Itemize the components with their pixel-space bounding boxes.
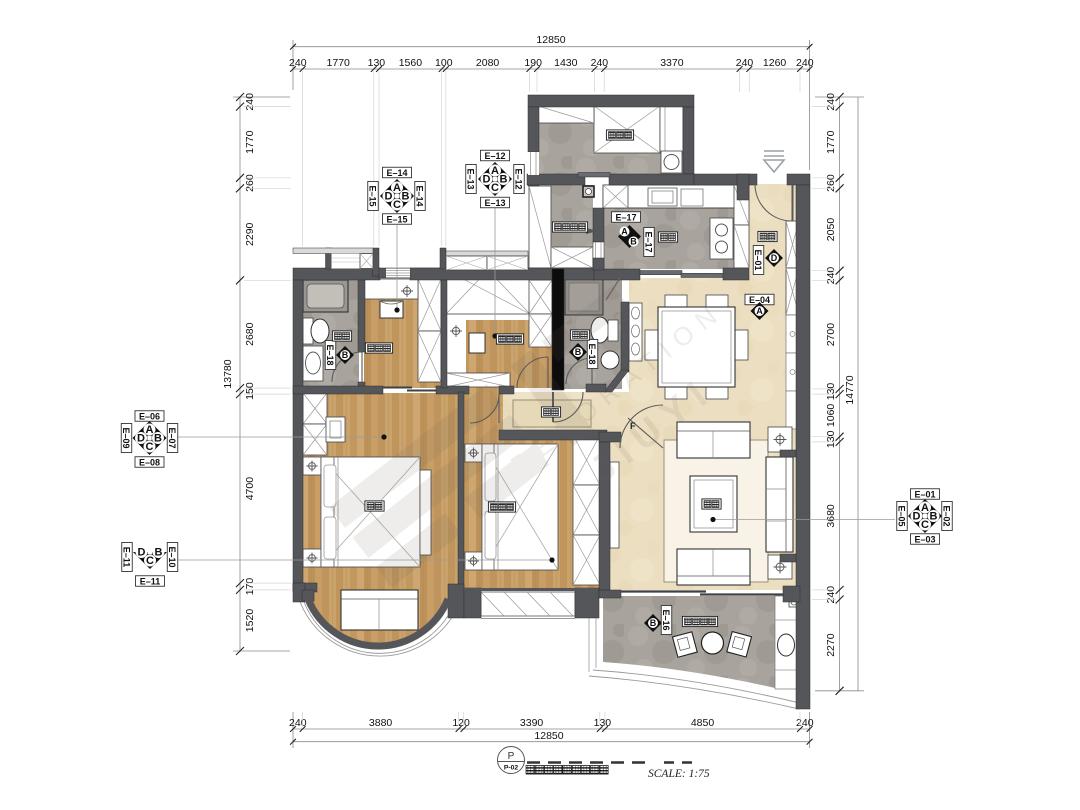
svg-text:B: B bbox=[342, 350, 349, 360]
svg-text:2680: 2680 bbox=[244, 322, 256, 346]
svg-text:E–11: E–11 bbox=[122, 547, 132, 568]
svg-text:E–18: E–18 bbox=[587, 343, 597, 364]
svg-text:E–15: E–15 bbox=[368, 185, 378, 206]
svg-text:B: B bbox=[500, 174, 508, 186]
svg-text:2050: 2050 bbox=[825, 218, 837, 242]
svg-text:130: 130 bbox=[594, 717, 612, 729]
svg-text:D: D bbox=[483, 174, 491, 186]
svg-text:1770: 1770 bbox=[244, 130, 256, 154]
svg-text:P-02: P-02 bbox=[504, 765, 519, 772]
svg-text:130: 130 bbox=[368, 57, 386, 69]
svg-text:C: C bbox=[921, 519, 929, 531]
svg-text:4700: 4700 bbox=[244, 477, 256, 501]
svg-text:E–01: E–01 bbox=[753, 249, 763, 270]
svg-text:E–14: E–14 bbox=[415, 185, 425, 206]
svg-text:E–18: E–18 bbox=[325, 344, 335, 365]
svg-text:2080: 2080 bbox=[476, 57, 500, 69]
svg-text:120: 120 bbox=[452, 717, 470, 729]
svg-text:SCALE: 1:75: SCALE: 1:75 bbox=[648, 768, 710, 780]
svg-text:B: B bbox=[154, 433, 162, 445]
svg-text:1520: 1520 bbox=[244, 609, 256, 633]
svg-text:2290: 2290 bbox=[244, 222, 256, 246]
svg-text:1260: 1260 bbox=[763, 57, 787, 69]
svg-text:240: 240 bbox=[796, 57, 814, 69]
svg-text:C: C bbox=[146, 441, 154, 453]
svg-text:240: 240 bbox=[289, 717, 307, 729]
svg-text:1770: 1770 bbox=[825, 130, 837, 154]
svg-text:E–10: E–10 bbox=[167, 546, 177, 567]
svg-text:14770: 14770 bbox=[844, 375, 856, 404]
svg-text:3880: 3880 bbox=[369, 717, 393, 729]
svg-text:E–14: E–14 bbox=[386, 168, 407, 178]
svg-text:C: C bbox=[393, 199, 401, 211]
svg-text:12850: 12850 bbox=[534, 730, 563, 742]
svg-text:E–13: E–13 bbox=[484, 198, 505, 208]
svg-text:130: 130 bbox=[825, 383, 837, 401]
svg-text:240: 240 bbox=[736, 57, 754, 69]
svg-text:130: 130 bbox=[825, 430, 837, 448]
svg-text:2270: 2270 bbox=[825, 633, 837, 657]
svg-text:240: 240 bbox=[825, 586, 837, 604]
svg-text:190: 190 bbox=[524, 57, 542, 69]
svg-text:D: D bbox=[771, 253, 778, 263]
svg-text:E–05: E–05 bbox=[897, 505, 907, 526]
svg-text:260: 260 bbox=[244, 174, 256, 192]
svg-text:150: 150 bbox=[244, 382, 256, 400]
svg-text:E–17: E–17 bbox=[644, 231, 654, 252]
svg-text:13780: 13780 bbox=[222, 359, 234, 388]
svg-text:B: B bbox=[402, 191, 410, 203]
svg-text:240: 240 bbox=[796, 717, 814, 729]
svg-text:A: A bbox=[921, 502, 929, 514]
svg-text:E–08: E–08 bbox=[139, 457, 160, 467]
svg-text:E–09: E–09 bbox=[121, 427, 131, 448]
svg-text:A: A bbox=[756, 306, 763, 316]
svg-text:E–17: E–17 bbox=[615, 212, 636, 222]
svg-text:E–16: E–16 bbox=[661, 609, 671, 630]
svg-text:E–02: E–02 bbox=[942, 505, 952, 526]
svg-text:100: 100 bbox=[435, 57, 453, 69]
svg-text:12850: 12850 bbox=[536, 34, 565, 46]
svg-text:E–12: E–12 bbox=[514, 168, 524, 189]
svg-text:3680: 3680 bbox=[825, 504, 837, 528]
svg-text:A: A bbox=[491, 165, 499, 177]
svg-text:D: D bbox=[138, 547, 146, 559]
svg-text:D: D bbox=[913, 511, 921, 523]
svg-text:B: B bbox=[155, 547, 163, 559]
svg-text:260: 260 bbox=[825, 174, 837, 192]
svg-text:E–07: E–07 bbox=[167, 427, 177, 448]
svg-text:3370: 3370 bbox=[660, 57, 684, 69]
svg-text:B: B bbox=[650, 618, 657, 628]
svg-text:P: P bbox=[508, 751, 515, 762]
svg-text:E–06: E–06 bbox=[139, 411, 160, 421]
svg-text:4850: 4850 bbox=[691, 717, 715, 729]
svg-text:E–11: E–11 bbox=[140, 576, 161, 586]
svg-text:B: B bbox=[630, 237, 637, 247]
svg-text:A: A bbox=[146, 424, 154, 436]
svg-text:240: 240 bbox=[289, 57, 307, 69]
svg-text:E–13: E–13 bbox=[466, 168, 476, 189]
svg-text:240: 240 bbox=[244, 93, 256, 111]
svg-text:D: D bbox=[385, 191, 393, 203]
svg-text:E–03: E–03 bbox=[914, 534, 935, 544]
svg-text:E–01: E–01 bbox=[914, 489, 935, 499]
svg-text:1560: 1560 bbox=[399, 57, 423, 69]
svg-text:240: 240 bbox=[591, 57, 609, 69]
svg-text:C: C bbox=[491, 182, 499, 194]
svg-text:2700: 2700 bbox=[825, 323, 837, 347]
svg-text:1060: 1060 bbox=[825, 404, 837, 428]
svg-text:D: D bbox=[137, 433, 145, 445]
svg-text:1770: 1770 bbox=[327, 57, 351, 69]
svg-text:240: 240 bbox=[825, 93, 837, 111]
svg-text:E–12: E–12 bbox=[484, 151, 505, 161]
svg-text:A: A bbox=[621, 227, 628, 237]
svg-text:170: 170 bbox=[244, 578, 256, 596]
svg-text:1430: 1430 bbox=[554, 57, 578, 69]
svg-text:C: C bbox=[146, 555, 154, 567]
svg-text:240: 240 bbox=[825, 267, 837, 285]
svg-text:A: A bbox=[393, 182, 401, 194]
svg-text:3390: 3390 bbox=[520, 717, 544, 729]
svg-text:E–15: E–15 bbox=[386, 214, 407, 224]
svg-text:B: B bbox=[575, 347, 582, 357]
svg-text:B: B bbox=[930, 511, 938, 523]
